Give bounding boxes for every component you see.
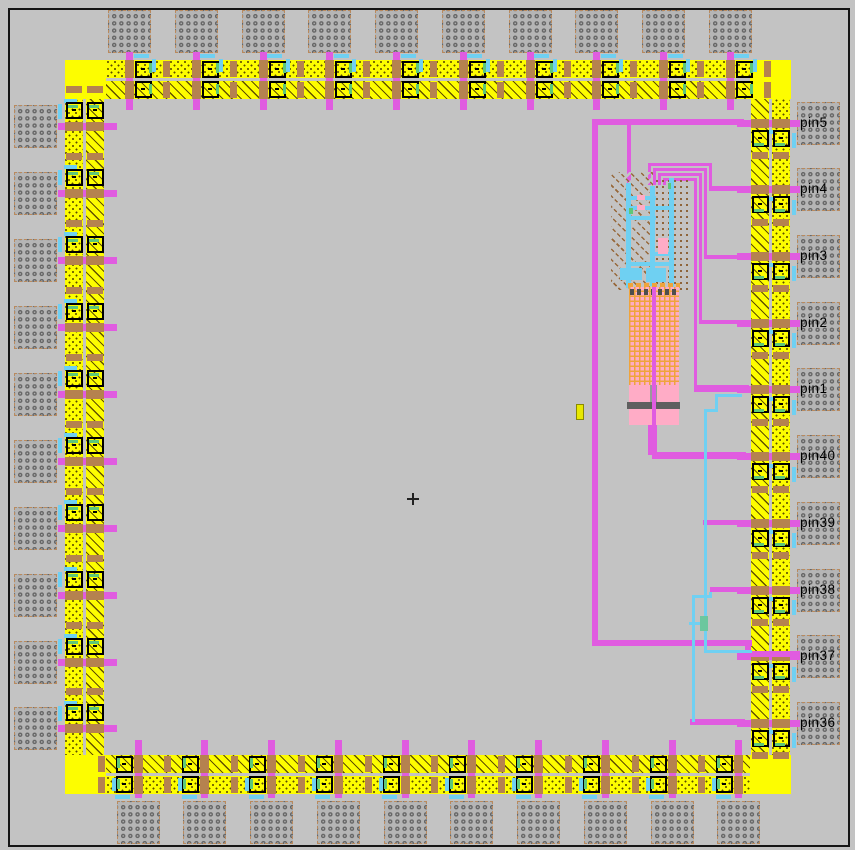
bond-opening bbox=[14, 507, 57, 550]
via-array-mark bbox=[659, 81, 668, 99]
poly-rail[interactable] bbox=[669, 178, 674, 288]
via-array-mark bbox=[726, 60, 735, 78]
metal2-route[interactable] bbox=[703, 520, 745, 525]
contact-green-mark bbox=[89, 707, 99, 710]
contact-green-mark bbox=[384, 779, 387, 789]
contact-green-mark bbox=[668, 183, 671, 189]
pad-center-mark bbox=[255, 763, 259, 765]
metal1-route[interactable] bbox=[704, 650, 752, 653]
pad-center-mark bbox=[322, 763, 326, 765]
via-array-mark bbox=[87, 153, 103, 160]
poly-rung bbox=[626, 262, 674, 266]
pad-poly-stub bbox=[58, 706, 62, 721]
via-array-mark bbox=[98, 777, 105, 793]
pad-poly-stub bbox=[553, 59, 557, 72]
pin-label-pin36[interactable]: pin36 bbox=[800, 716, 848, 730]
contact-green-mark bbox=[775, 409, 785, 412]
pad-center-mark bbox=[675, 68, 679, 70]
pad-poly-stub bbox=[219, 59, 223, 72]
contact-green-mark bbox=[750, 84, 753, 94]
via-array-mark bbox=[772, 719, 790, 728]
pad-ring-bottom-outer[interactable] bbox=[65, 776, 791, 794]
pin-label-pin2[interactable]: pin2 bbox=[800, 316, 848, 330]
via-array-mark bbox=[65, 658, 83, 667]
via-array-mark bbox=[773, 419, 789, 426]
via-array-mark bbox=[87, 622, 103, 629]
contact-green-mark bbox=[183, 758, 186, 768]
via-array-mark bbox=[751, 586, 769, 595]
via-array-mark bbox=[773, 752, 789, 759]
poly-rung bbox=[626, 206, 674, 210]
contact-green-mark bbox=[317, 758, 320, 768]
contact-green-mark bbox=[683, 63, 686, 73]
contact-green-mark bbox=[775, 676, 785, 679]
via-array-mark bbox=[592, 60, 601, 78]
via-array-mark bbox=[773, 486, 789, 493]
contact-green-mark bbox=[89, 306, 99, 309]
pad-poly-stub bbox=[516, 795, 531, 799]
via-array-mark bbox=[564, 82, 571, 98]
via-array-mark bbox=[773, 552, 789, 559]
metal2-route[interactable] bbox=[592, 119, 598, 646]
pad-poly-stub bbox=[582, 795, 597, 799]
via-array-mark bbox=[192, 81, 201, 99]
contact-green-mark bbox=[450, 779, 453, 789]
via-array-mark bbox=[66, 555, 82, 562]
pad-center-mark bbox=[542, 88, 546, 90]
pad-center-mark bbox=[779, 270, 783, 272]
metal2-route[interactable] bbox=[745, 651, 800, 657]
via-array-mark bbox=[87, 488, 103, 495]
metal2-route[interactable] bbox=[694, 178, 697, 390]
pin-label-pin4[interactable]: pin4 bbox=[800, 182, 848, 196]
pad-poly-stub bbox=[352, 59, 356, 72]
pad-poly-stub bbox=[58, 371, 62, 386]
via-array-mark bbox=[231, 756, 238, 772]
pad-center-mark bbox=[275, 68, 279, 70]
via-array-mark bbox=[431, 777, 438, 793]
metal2-route[interactable] bbox=[690, 719, 745, 725]
via-array-mark bbox=[772, 452, 790, 461]
contact-green-mark bbox=[89, 239, 99, 242]
contact-green-mark bbox=[754, 743, 764, 746]
bond-opening bbox=[717, 801, 760, 844]
via-array-mark bbox=[773, 352, 789, 359]
contact-green-mark bbox=[750, 63, 753, 73]
via-array-mark bbox=[498, 756, 505, 772]
bond-opening bbox=[317, 801, 360, 844]
pad-center-mark bbox=[758, 203, 762, 205]
pin-label-pin39[interactable]: pin39 bbox=[800, 516, 848, 530]
metal2-route[interactable] bbox=[704, 168, 707, 259]
via-array-mark bbox=[87, 220, 103, 227]
metal1-route[interactable] bbox=[715, 394, 742, 397]
via-array-mark bbox=[751, 119, 769, 128]
via-array-mark bbox=[98, 756, 105, 772]
bond-opening bbox=[509, 10, 552, 53]
pad-center-mark bbox=[208, 88, 212, 90]
metal2-route[interactable] bbox=[652, 452, 746, 459]
contact-green-mark bbox=[754, 610, 764, 613]
pad-poly-stub bbox=[152, 59, 156, 72]
pad-center-mark bbox=[93, 511, 97, 513]
pad-center-mark bbox=[72, 511, 76, 513]
pad-center-mark bbox=[208, 68, 212, 70]
via-array-mark bbox=[86, 256, 104, 265]
metal1-route[interactable] bbox=[704, 409, 707, 618]
via-array-mark bbox=[630, 82, 637, 98]
via-array-mark bbox=[764, 61, 771, 77]
contact-green-mark bbox=[89, 440, 99, 443]
pad-center-mark bbox=[72, 645, 76, 647]
pad-poly-stub bbox=[792, 333, 796, 348]
contact-green-mark bbox=[283, 63, 286, 73]
pad-center-mark bbox=[93, 310, 97, 312]
bond-opening bbox=[117, 801, 160, 844]
cap-center-line bbox=[652, 287, 656, 427]
pin-label-pin37[interactable]: pin37 bbox=[800, 649, 848, 663]
poly-comb bbox=[646, 268, 666, 282]
via-array-mark bbox=[164, 777, 171, 793]
via-array-mark bbox=[526, 60, 535, 78]
contact-green-mark bbox=[775, 209, 785, 212]
bond-opening bbox=[14, 105, 57, 148]
metal2-route[interactable] bbox=[699, 320, 745, 324]
pad-center-mark bbox=[93, 109, 97, 111]
via-array-mark bbox=[734, 755, 743, 773]
pad-poly-stub bbox=[449, 795, 464, 799]
pad-poly-stub bbox=[619, 59, 623, 72]
contact-green-mark bbox=[216, 63, 219, 73]
via-array-mark bbox=[565, 756, 572, 772]
pad-center-mark bbox=[141, 88, 145, 90]
pad-center-mark bbox=[656, 783, 660, 785]
via-array-mark bbox=[772, 185, 790, 194]
contact-green-mark bbox=[68, 507, 78, 510]
via-array-mark bbox=[632, 756, 639, 772]
pad-center-mark bbox=[742, 68, 746, 70]
metal2-route[interactable] bbox=[658, 173, 702, 176]
pad-center-mark bbox=[93, 243, 97, 245]
metal2-route[interactable] bbox=[648, 163, 712, 166]
pad-center-mark bbox=[779, 337, 783, 339]
metal2-route[interactable] bbox=[592, 640, 752, 646]
pad-poly-stub bbox=[534, 54, 549, 58]
via-array-mark bbox=[459, 81, 468, 99]
via-array-mark bbox=[365, 756, 372, 772]
contact-green-mark bbox=[68, 105, 78, 108]
pad-center-mark bbox=[122, 763, 126, 765]
pad-poly-stub bbox=[686, 59, 690, 72]
metal2-route[interactable] bbox=[709, 186, 745, 191]
contact-green-mark bbox=[775, 143, 785, 146]
bond-opening bbox=[14, 306, 57, 349]
via-array-mark bbox=[86, 189, 104, 198]
via-array-mark bbox=[134, 755, 143, 773]
pad-poly-stub bbox=[115, 795, 130, 799]
via-array-mark bbox=[200, 755, 209, 773]
via-array-mark bbox=[363, 82, 370, 98]
contact-green-mark bbox=[717, 779, 720, 789]
via-array-mark bbox=[752, 486, 768, 493]
layout-canvas[interactable]: pin5pin4pin3pin2pin1pin40pin39pin38pin37… bbox=[0, 0, 855, 850]
contact-green-mark bbox=[416, 63, 419, 73]
bond-opening bbox=[575, 10, 618, 53]
via-array-mark bbox=[66, 688, 82, 695]
contact-green-mark bbox=[775, 743, 785, 746]
pad-center-mark bbox=[93, 711, 97, 713]
contact-green-mark bbox=[349, 84, 352, 94]
pad-poly-stub bbox=[792, 733, 796, 748]
via-array-mark bbox=[534, 755, 543, 773]
pin-label-pin40[interactable]: pin40 bbox=[800, 449, 848, 463]
via-array-mark bbox=[751, 519, 769, 528]
contact-green-mark bbox=[216, 84, 219, 94]
contact-green-mark bbox=[775, 543, 785, 546]
contact-green-mark bbox=[550, 63, 553, 73]
via-array-mark bbox=[751, 319, 769, 328]
bond-opening bbox=[14, 172, 57, 215]
metal1-route[interactable] bbox=[692, 595, 712, 598]
bond-opening bbox=[642, 10, 685, 53]
contact-green-mark bbox=[483, 84, 486, 94]
contact-green-mark bbox=[517, 779, 520, 789]
via-array-mark bbox=[363, 61, 370, 77]
pad-center-mark bbox=[656, 763, 660, 765]
pad-center-mark bbox=[779, 537, 783, 539]
contact-green-mark bbox=[68, 707, 78, 710]
pad-poly-stub bbox=[753, 59, 757, 72]
contact-green-mark bbox=[89, 641, 99, 644]
pad-center-mark bbox=[722, 763, 726, 765]
pad-center-mark bbox=[341, 68, 345, 70]
via-array-mark bbox=[65, 724, 83, 733]
metal2-route[interactable] bbox=[699, 173, 702, 324]
pad-center-mark bbox=[758, 604, 762, 606]
contact-green-mark bbox=[616, 84, 619, 94]
pad-center-mark bbox=[758, 403, 762, 405]
contact-green-mark bbox=[89, 105, 99, 108]
contact-green-mark bbox=[775, 476, 785, 479]
implant-mark bbox=[658, 238, 668, 254]
via-array-mark bbox=[773, 686, 789, 693]
pad-poly-stub bbox=[334, 54, 349, 58]
contact-green-mark bbox=[89, 373, 99, 376]
pad-ring-right-inner[interactable] bbox=[751, 60, 769, 794]
via-array-mark bbox=[164, 756, 171, 772]
bond-opening bbox=[14, 574, 57, 617]
via-array-mark bbox=[526, 81, 535, 99]
pad-poly-stub bbox=[419, 59, 423, 72]
via-array-mark bbox=[325, 81, 334, 99]
contact-green-mark bbox=[68, 574, 78, 577]
pad-center-mark bbox=[408, 88, 412, 90]
via-array-mark bbox=[334, 776, 343, 794]
metal2-route[interactable] bbox=[592, 119, 744, 125]
via-array-mark bbox=[65, 457, 83, 466]
pad-center-mark bbox=[122, 783, 126, 785]
pad-center-mark bbox=[779, 670, 783, 672]
contact-green-mark bbox=[754, 143, 764, 146]
via-array-mark bbox=[467, 755, 476, 773]
via-array-mark bbox=[752, 752, 768, 759]
pad-center-mark bbox=[72, 310, 76, 312]
metal2-route[interactable] bbox=[704, 255, 745, 259]
pad-center-mark bbox=[758, 537, 762, 539]
via-array-mark bbox=[430, 82, 437, 98]
via-array-mark bbox=[751, 252, 769, 261]
pad-poly-stub bbox=[58, 438, 62, 453]
via-array-mark bbox=[65, 591, 83, 600]
pad-poly-stub bbox=[601, 54, 616, 58]
via-array-mark bbox=[698, 777, 705, 793]
via-array-mark bbox=[772, 519, 790, 528]
contact-green-mark bbox=[384, 758, 387, 768]
via-array-mark bbox=[772, 385, 790, 394]
via-array-mark bbox=[86, 658, 104, 667]
pad-poly-stub bbox=[792, 133, 796, 148]
via-array-mark bbox=[231, 777, 238, 793]
pad-center-mark bbox=[779, 737, 783, 739]
via-array-mark bbox=[325, 60, 334, 78]
metal2-route[interactable] bbox=[648, 425, 657, 455]
pad-poly-stub bbox=[315, 795, 330, 799]
pad-poly-stub bbox=[792, 600, 796, 615]
pad-poly-stub bbox=[249, 795, 264, 799]
bond-opening bbox=[14, 440, 57, 483]
pad-center-mark bbox=[779, 604, 783, 606]
contact-green-mark bbox=[775, 343, 785, 346]
pad-poly-stub bbox=[58, 237, 62, 252]
via-array-mark bbox=[392, 60, 401, 78]
pad-center-mark bbox=[93, 645, 97, 647]
via-array-mark bbox=[751, 719, 769, 728]
pad-center-mark bbox=[455, 783, 459, 785]
bond-opening bbox=[384, 801, 427, 844]
pad-poly-stub bbox=[486, 59, 490, 72]
via-array-mark bbox=[259, 60, 268, 78]
pad-poly-stub bbox=[134, 54, 149, 58]
via-array-mark bbox=[752, 619, 768, 626]
bond-opening bbox=[375, 10, 418, 53]
bond-opening bbox=[14, 239, 57, 282]
via-array-mark bbox=[365, 777, 372, 793]
pad-poly-stub bbox=[58, 572, 62, 587]
via-array-mark bbox=[751, 452, 769, 461]
contact-green-mark bbox=[117, 779, 120, 789]
via-array-mark bbox=[65, 256, 83, 265]
via-array-mark bbox=[125, 60, 134, 78]
via-array-mark bbox=[752, 219, 768, 226]
via-array-mark bbox=[565, 777, 572, 793]
bond-opening bbox=[651, 801, 694, 844]
via-array-mark bbox=[259, 81, 268, 99]
via-array-mark bbox=[87, 287, 103, 294]
via-array-mark bbox=[87, 555, 103, 562]
pad-center-mark bbox=[93, 444, 97, 446]
contact-green-mark bbox=[517, 758, 520, 768]
pad-center-mark bbox=[522, 783, 526, 785]
via-array-mark bbox=[66, 354, 82, 361]
pad-center-mark bbox=[522, 763, 526, 765]
contact-green-mark bbox=[68, 239, 78, 242]
via-array-mark bbox=[726, 81, 735, 99]
via-array-mark bbox=[298, 756, 305, 772]
pad-center-mark bbox=[589, 783, 593, 785]
contact-green-mark bbox=[416, 84, 419, 94]
via-array-mark bbox=[66, 622, 82, 629]
pad-poly-stub bbox=[401, 54, 416, 58]
via-array-mark bbox=[697, 82, 704, 98]
metal2-route[interactable] bbox=[653, 168, 707, 171]
pad-center-mark bbox=[93, 377, 97, 379]
pad-poly-stub bbox=[792, 467, 796, 482]
pad-ring-bottom-inner[interactable] bbox=[65, 755, 791, 773]
pad-ring-right-outer[interactable] bbox=[772, 60, 790, 794]
via-array-mark bbox=[200, 776, 209, 794]
via-array-mark bbox=[534, 776, 543, 794]
contact-green-mark bbox=[450, 758, 453, 768]
contact-green-mark bbox=[68, 172, 78, 175]
via-array-mark bbox=[65, 524, 83, 533]
bond-opening bbox=[450, 801, 493, 844]
via-array-mark bbox=[163, 82, 170, 98]
via-array-mark bbox=[751, 385, 769, 394]
via-array-mark bbox=[772, 119, 790, 128]
metal2-route[interactable] bbox=[694, 385, 749, 392]
via-array-mark bbox=[134, 776, 143, 794]
pad-poly-stub bbox=[792, 200, 796, 215]
contact-green-mark bbox=[149, 63, 152, 73]
pin-label-pin1[interactable]: pin1 bbox=[800, 382, 848, 396]
via-array-mark bbox=[87, 86, 103, 93]
metal1-route[interactable] bbox=[692, 595, 695, 722]
pin-label-pin5[interactable]: pin5 bbox=[800, 116, 848, 130]
via-array-mark bbox=[230, 61, 237, 77]
pad-center-mark bbox=[188, 783, 192, 785]
pad-center-mark bbox=[93, 578, 97, 580]
pin-label-pin38[interactable]: pin38 bbox=[800, 583, 848, 597]
pad-center-mark bbox=[608, 68, 612, 70]
pad-center-mark bbox=[72, 711, 76, 713]
via-array-mark bbox=[230, 82, 237, 98]
loose-yellow-marker[interactable] bbox=[576, 404, 584, 420]
via-array-mark bbox=[86, 724, 104, 733]
pad-center-mark bbox=[779, 403, 783, 405]
via-green bbox=[700, 616, 708, 631]
via-array-mark bbox=[87, 354, 103, 361]
contact-green-mark bbox=[754, 543, 764, 546]
via-array-mark bbox=[65, 189, 83, 198]
via-array-mark bbox=[752, 419, 768, 426]
via-array-mark bbox=[601, 755, 610, 773]
contact-green-mark bbox=[250, 758, 253, 768]
via-array-mark bbox=[86, 524, 104, 533]
contact-green-mark bbox=[754, 476, 764, 479]
contact-green-mark bbox=[68, 373, 78, 376]
contact-green-mark bbox=[89, 574, 99, 577]
via-array-mark bbox=[773, 152, 789, 159]
bond-opening bbox=[442, 10, 485, 53]
pin-label-pin3[interactable]: pin3 bbox=[800, 249, 848, 263]
via-array-mark bbox=[267, 755, 276, 773]
metal2-route[interactable] bbox=[710, 587, 745, 592]
via-array-mark bbox=[86, 591, 104, 600]
via-array-mark bbox=[86, 323, 104, 332]
contact-green-mark bbox=[68, 440, 78, 443]
bond-opening bbox=[14, 373, 57, 416]
via-array-mark bbox=[267, 776, 276, 794]
